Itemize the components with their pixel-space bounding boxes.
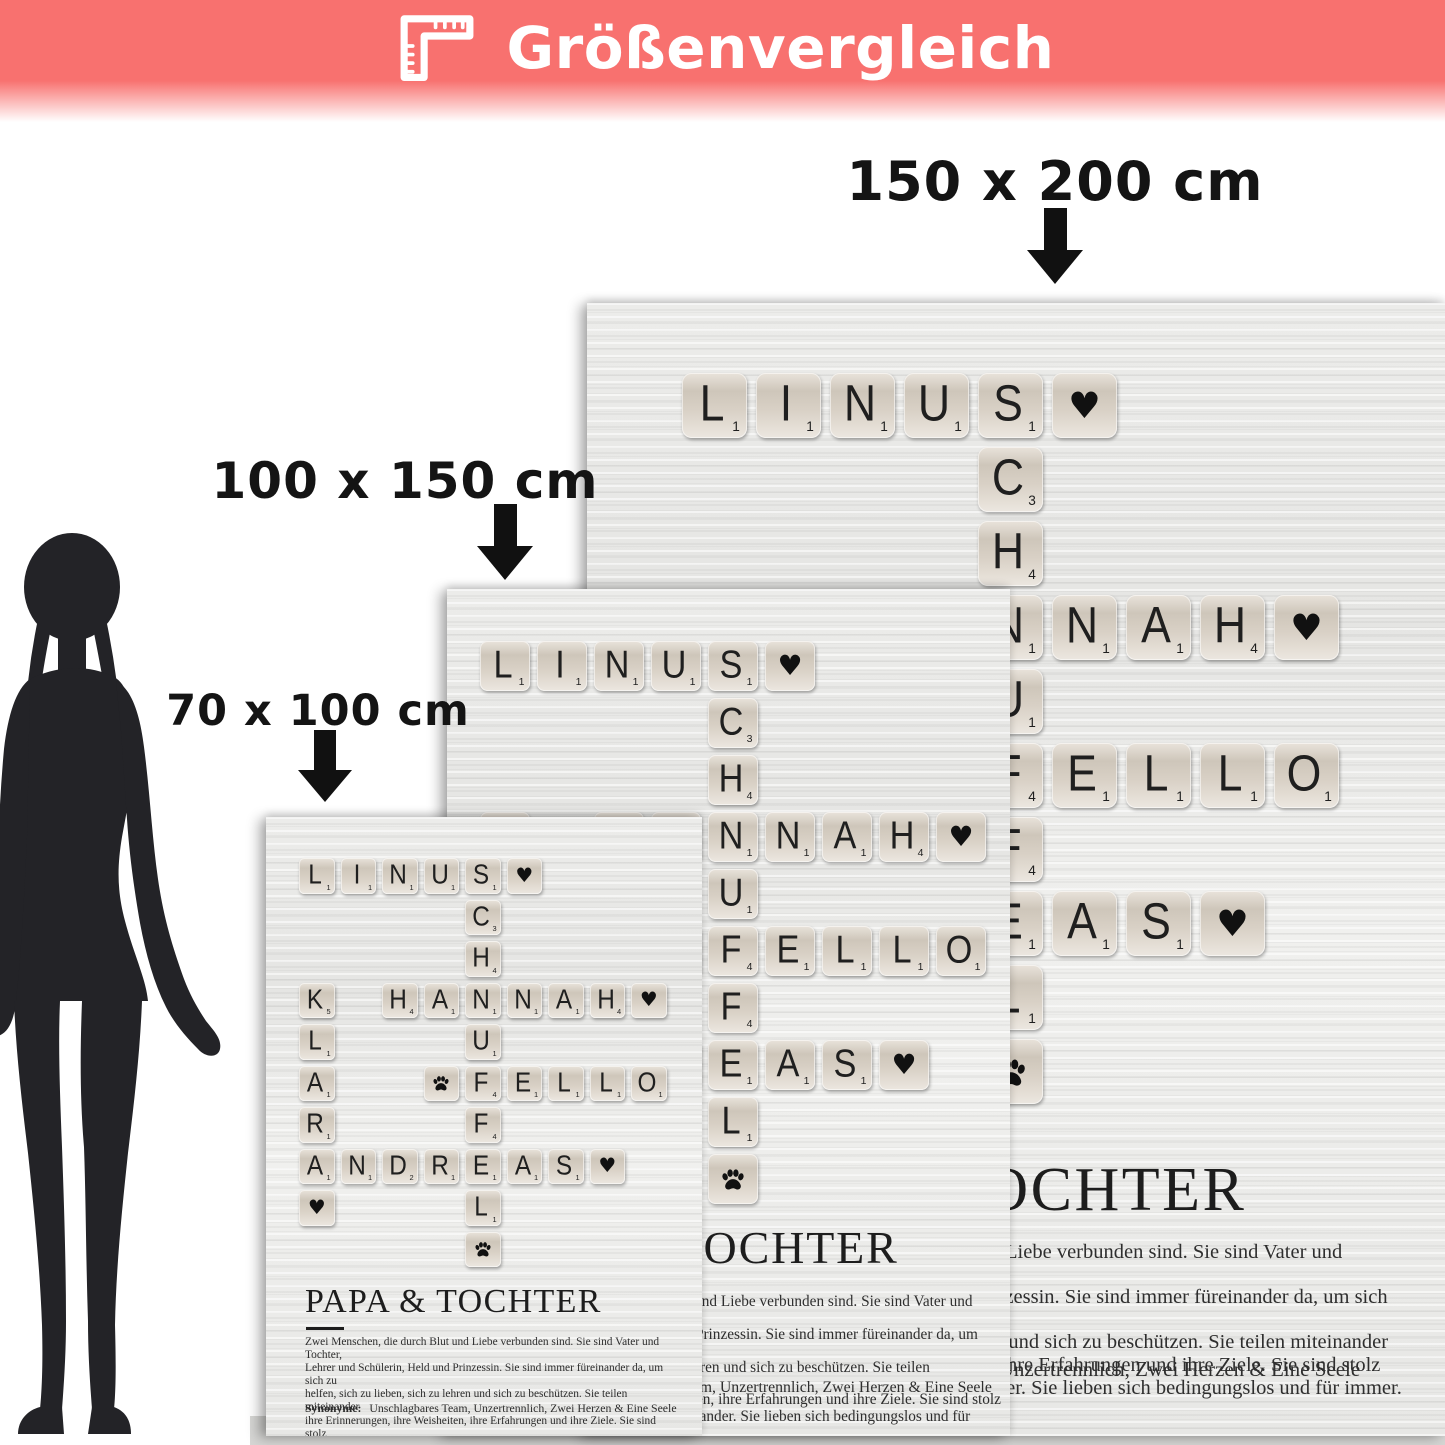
heart-tile: ♥ (879, 1040, 929, 1090)
letter-tile: O1 (1274, 743, 1339, 808)
heart-icon: ♥ (515, 866, 533, 886)
letter-tile: F4 (708, 926, 758, 976)
tile-letter: N (390, 861, 408, 889)
letter-tile: N1 (765, 812, 815, 862)
tile-value: 1 (1176, 642, 1184, 656)
letter-tile: L1 (590, 1066, 626, 1102)
down-arrow-icon-70x100 (297, 730, 353, 802)
tile-value: 1 (1028, 716, 1036, 730)
letter-tile: L1 (822, 926, 872, 976)
heart-tile: ♥ (1200, 891, 1265, 956)
tile-value: 1 (576, 677, 582, 688)
tile-value: 1 (747, 677, 753, 688)
letter-tile: S1 (1126, 891, 1191, 956)
tile-letter: L (1143, 748, 1168, 799)
tile-letter: I (353, 861, 360, 889)
woman-silhouette (0, 531, 238, 1441)
letter-tile: D2 (382, 1149, 418, 1185)
tile-value: 4 (492, 1091, 496, 1098)
letter-tile: H4 (1200, 595, 1265, 660)
heart-tile: ♥ (765, 641, 815, 691)
paw-tile (424, 1066, 460, 1102)
tile-letter: H (890, 816, 915, 855)
tile-value: 1 (492, 1216, 496, 1223)
letter-tile: F4 (465, 1066, 501, 1102)
synonyms-label: Synonyme: (305, 1401, 361, 1415)
tile-value: 1 (492, 1008, 496, 1015)
tile-letter: A (777, 1044, 800, 1083)
tile-value: 1 (880, 420, 888, 434)
heart-icon: ♥ (1068, 387, 1101, 423)
synonyms-text: Unschlagbares Team, Unzertrennlich, Zwei… (369, 1401, 676, 1415)
tile-value: 1 (451, 1008, 455, 1015)
heart-tile: ♥ (507, 858, 543, 894)
tile-value: 1 (747, 1133, 753, 1144)
tile-letter: S (834, 1044, 857, 1083)
letter-tile: A1 (424, 983, 460, 1019)
letter-tile: L1 (299, 858, 335, 894)
tile-value: 1 (633, 677, 639, 688)
letter-tile: A1 (1126, 595, 1191, 660)
letter-tile: E1 (507, 1066, 543, 1102)
letter-tile: A1 (1052, 891, 1117, 956)
tile-letter: O (1287, 748, 1322, 799)
tile-value: 1 (368, 1174, 372, 1181)
tile-letter: U (662, 645, 687, 684)
tile-value: 4 (918, 848, 924, 859)
tile-value: 1 (747, 848, 753, 859)
letter-tile: N1 (1052, 595, 1117, 660)
letter-tile: L1 (708, 1097, 758, 1147)
tile-value: 4 (1028, 864, 1036, 878)
tile-letter: N (719, 816, 744, 855)
letter-tile: R1 (424, 1149, 460, 1185)
letter-tile: L1 (879, 926, 929, 976)
tile-letter: I (555, 645, 565, 684)
tile-value: 1 (1176, 938, 1184, 952)
title-underline (306, 1327, 344, 1330)
tile-value: 1 (1102, 790, 1110, 804)
tile-value: 1 (534, 1091, 538, 1098)
letter-tile: L1 (299, 1024, 335, 1060)
tile-letter: L (309, 861, 323, 889)
tile-letter: A (515, 1151, 531, 1179)
tile-letter: H (1214, 600, 1246, 651)
tile-value: 1 (326, 1133, 330, 1140)
letter-tile: H4 (708, 755, 758, 805)
tile-value: 1 (806, 420, 814, 434)
letter-tile: I1 (537, 641, 587, 691)
tile-letter: L (1217, 748, 1242, 799)
tile-value: 1 (954, 420, 962, 434)
tile-value: 1 (975, 962, 981, 973)
tile-letter: A (1141, 600, 1171, 651)
tile-value: 1 (575, 1008, 579, 1015)
tile-letter: E (473, 1151, 489, 1179)
tile-letter: L (599, 1068, 613, 1096)
size-label-150x200: 150 x 200 cm (840, 150, 1270, 213)
letter-tile: A1 (822, 812, 872, 862)
tile-letter: H (473, 944, 491, 972)
corner-ruler-icon (391, 6, 483, 90)
tile-letter: U (431, 861, 449, 889)
letter-tile: A1 (765, 1040, 815, 1090)
heart-icon: ♥ (777, 652, 802, 680)
letter-tile: S1 (548, 1149, 584, 1185)
tile-letter: L (721, 1101, 740, 1140)
tile-value: 1 (409, 884, 413, 891)
paw-icon (719, 1165, 747, 1193)
tile-letter: C (992, 452, 1024, 503)
tile-value: 1 (326, 884, 330, 891)
paw-tile (708, 1154, 758, 1204)
tile-letter: N (1066, 600, 1098, 651)
tile-value: 1 (575, 1091, 579, 1098)
size-label-100x150: 100 x 150 cm (195, 452, 615, 510)
tile-letter: O (638, 1068, 657, 1096)
tile-letter: L (892, 930, 911, 969)
letter-tile: L1 (1200, 743, 1265, 808)
letter-tile: U1 (465, 1024, 501, 1060)
letter-tile: R1 (299, 1107, 335, 1143)
heart-tile: ♥ (299, 1190, 335, 1226)
tile-value: 1 (747, 905, 753, 916)
tile-value: 2 (409, 1174, 413, 1181)
tile-value: 4 (1250, 642, 1258, 656)
tile-letter: H (597, 985, 615, 1013)
tile-letter: D (390, 1151, 408, 1179)
letter-tile: F4 (708, 983, 758, 1033)
tile-value: 4 (617, 1008, 621, 1015)
letter-tile: O1 (936, 926, 986, 976)
tile-value: 1 (492, 1174, 496, 1181)
tile-value: 1 (326, 1174, 330, 1181)
tile-value: 1 (658, 1091, 662, 1098)
tile-letter: I (780, 378, 792, 429)
tile-letter: S (556, 1151, 572, 1179)
letter-tile: N1 (507, 983, 543, 1019)
letter-tile: U1 (904, 373, 969, 438)
letter-tile: C3 (708, 698, 758, 748)
tile-letter: F (721, 930, 742, 969)
letter-tile: S1 (822, 1040, 872, 1090)
tile-value: 1 (1028, 938, 1036, 952)
letter-tile: A1 (299, 1066, 335, 1102)
tile-value: 4 (492, 967, 496, 974)
heart-icon: ♥ (1216, 905, 1249, 941)
down-arrow-icon-100x150 (477, 504, 533, 580)
tile-letter: L (835, 930, 854, 969)
tile-letter: A (1067, 896, 1097, 947)
letter-tile: N1 (341, 1149, 377, 1185)
letter-tile: K5 (299, 983, 335, 1019)
tile-letter: S (473, 861, 489, 889)
letter-tile: S1 (978, 373, 1043, 438)
tile-letter: C (719, 702, 744, 741)
letter-tile: E1 (1052, 743, 1117, 808)
tile-letter: A (432, 985, 448, 1013)
tile-value: 1 (804, 1076, 810, 1087)
tile-letter: A (307, 1068, 323, 1096)
letter-tile: C3 (465, 900, 501, 936)
tile-value: 1 (575, 1174, 579, 1181)
tile-letter: H (390, 985, 408, 1013)
letter-tile: U1 (651, 641, 701, 691)
tile-value: 1 (519, 677, 525, 688)
tile-value: 1 (804, 962, 810, 973)
letter-tile: E1 (708, 1040, 758, 1090)
tile-value: 1 (326, 1050, 330, 1057)
tile-letter: E (720, 1044, 743, 1083)
poster-synonyms: Synonyme:Unschlagbares Team, Unzertrennl… (305, 1401, 677, 1416)
tile-letter: U (473, 1027, 491, 1055)
size-comparison-banner: Größenvergleich (0, 0, 1445, 122)
tile-letter: A (307, 1151, 323, 1179)
letter-tile: L1 (465, 1190, 501, 1226)
tile-value: 1 (732, 420, 740, 434)
tile-value: 1 (804, 848, 810, 859)
tile-value: 4 (409, 1008, 413, 1015)
poster-title: PAPA & TOCHTER (305, 1283, 602, 1321)
letter-tile: U1 (424, 858, 460, 894)
tile-letter: E (777, 930, 800, 969)
tile-value: 3 (1028, 494, 1036, 508)
tile-value: 1 (690, 677, 696, 688)
tile-value: 1 (1324, 790, 1332, 804)
tile-letter: H (992, 526, 1024, 577)
down-arrow-icon-150x200 (1027, 208, 1083, 284)
letter-tile: N1 (594, 641, 644, 691)
tile-value: 1 (861, 962, 867, 973)
tile-value: 3 (747, 734, 753, 745)
letter-tile: H4 (590, 983, 626, 1019)
heart-tile: ♥ (1274, 595, 1339, 660)
letter-tile: U1 (708, 869, 758, 919)
letter-tile: H4 (382, 983, 418, 1019)
tile-letter: L (309, 1027, 323, 1055)
poster-description: Zwei Menschen, die durch Blut und Liebe … (305, 1336, 675, 1436)
tile-letter: R (307, 1110, 325, 1138)
poster-70x100: L1I1N1U1S1♥C3H4K5H4A1N1N1A1H4♥L1U1A1F4E1… (266, 817, 702, 1436)
tile-value: 1 (492, 1050, 496, 1057)
letter-tile: O1 (631, 1066, 667, 1102)
heart-tile: ♥ (590, 1149, 626, 1185)
letter-tile: F4 (465, 1107, 501, 1143)
tile-letter: U (918, 378, 950, 429)
tile-letter: S (993, 378, 1023, 429)
heart-icon: ♥ (640, 990, 658, 1010)
tile-value: 3 (492, 925, 496, 932)
paw-icon (431, 1073, 451, 1093)
tile-letter: H (719, 759, 744, 798)
tile-letter: S (1141, 896, 1171, 947)
tile-letter: F (474, 1110, 489, 1138)
letter-tile: E1 (465, 1149, 501, 1185)
letter-tile: N1 (830, 373, 895, 438)
letter-tile: L1 (480, 641, 530, 691)
letter-tile: S1 (708, 641, 758, 691)
tile-value: 4 (1028, 790, 1036, 804)
heart-icon: ♥ (891, 1051, 916, 1079)
tile-value: 1 (1028, 642, 1036, 656)
tile-letter: A (834, 816, 857, 855)
letter-tile: N1 (708, 812, 758, 862)
tile-value: 1 (326, 1091, 330, 1098)
tile-letter: L (558, 1068, 572, 1096)
tile-value: 1 (1102, 938, 1110, 952)
letter-tile: H4 (879, 812, 929, 862)
tile-letter: S (720, 645, 743, 684)
tile-letter: L (475, 1193, 489, 1221)
banner-title: Größenvergleich (507, 14, 1055, 82)
paw-icon (473, 1239, 493, 1259)
tile-value: 5 (326, 1008, 330, 1015)
tile-letter: L (699, 378, 724, 429)
tile-value: 1 (1250, 790, 1258, 804)
tile-value: 1 (1176, 790, 1184, 804)
tile-letter: C (473, 902, 491, 930)
tile-letter: E (515, 1068, 531, 1096)
tile-value: 1 (534, 1008, 538, 1015)
tile-letter: R (431, 1151, 449, 1179)
heart-icon: ♥ (948, 823, 973, 851)
letter-tile: N1 (382, 858, 418, 894)
tile-value: 4 (747, 962, 753, 973)
tile-value: 1 (451, 884, 455, 891)
letter-tile: I1 (756, 373, 821, 438)
tile-value: 4 (747, 1019, 753, 1030)
letter-tile: A1 (507, 1149, 543, 1185)
letter-tile: L1 (548, 1066, 584, 1102)
letter-tile: E1 (765, 926, 815, 976)
tile-letter: F (474, 1068, 489, 1096)
tile-value: 1 (617, 1091, 621, 1098)
tile-letter: N (348, 1151, 366, 1179)
tile-value: 4 (1028, 568, 1036, 582)
letter-tile: H4 (978, 521, 1043, 586)
heart-tile: ♥ (1052, 373, 1117, 438)
tile-value: 1 (492, 884, 496, 891)
letter-tile: N1 (465, 983, 501, 1019)
heart-icon: ♥ (308, 1198, 326, 1218)
letter-tile: L1 (1126, 743, 1191, 808)
tile-value: 1 (1102, 642, 1110, 656)
tile-letter: L (493, 645, 512, 684)
tile-value: 1 (1028, 1012, 1036, 1026)
heart-tile: ♥ (936, 812, 986, 862)
tile-value: 1 (1028, 420, 1036, 434)
tile-value: 4 (747, 791, 753, 802)
size-label-70x100: 70 x 100 cm (133, 686, 503, 736)
paw-tile (465, 1232, 501, 1268)
tile-letter: U (719, 873, 744, 912)
tile-letter: A (556, 985, 572, 1013)
tile-letter: N (605, 645, 630, 684)
tile-value: 1 (534, 1174, 538, 1181)
heart-tile: ♥ (631, 983, 667, 1019)
tile-value: 1 (918, 962, 924, 973)
letter-tile: A1 (299, 1149, 335, 1185)
letter-tile: L1 (682, 373, 747, 438)
tile-letter: F (721, 987, 742, 1026)
tile-letter: N (776, 816, 801, 855)
tile-value: 1 (747, 1076, 753, 1087)
letter-tile: A1 (548, 983, 584, 1019)
letter-tile: C3 (978, 447, 1043, 512)
tile-value: 1 (368, 884, 372, 891)
tile-value: 1 (451, 1174, 455, 1181)
tile-value: 1 (861, 1076, 867, 1087)
tile-letter: K (307, 985, 323, 1013)
letter-tile: H4 (465, 941, 501, 977)
tile-letter: N (844, 378, 876, 429)
tile-letter: E (1067, 748, 1097, 799)
letter-tile: I1 (341, 858, 377, 894)
heart-icon: ♥ (1290, 609, 1323, 645)
letter-tile: S1 (465, 858, 501, 894)
tile-value: 1 (861, 848, 867, 859)
tile-letter: N (473, 985, 491, 1013)
tile-letter: N (514, 985, 532, 1013)
heart-icon: ♥ (598, 1156, 616, 1176)
tile-letter: O (946, 930, 973, 969)
tile-value: 4 (492, 1133, 496, 1140)
